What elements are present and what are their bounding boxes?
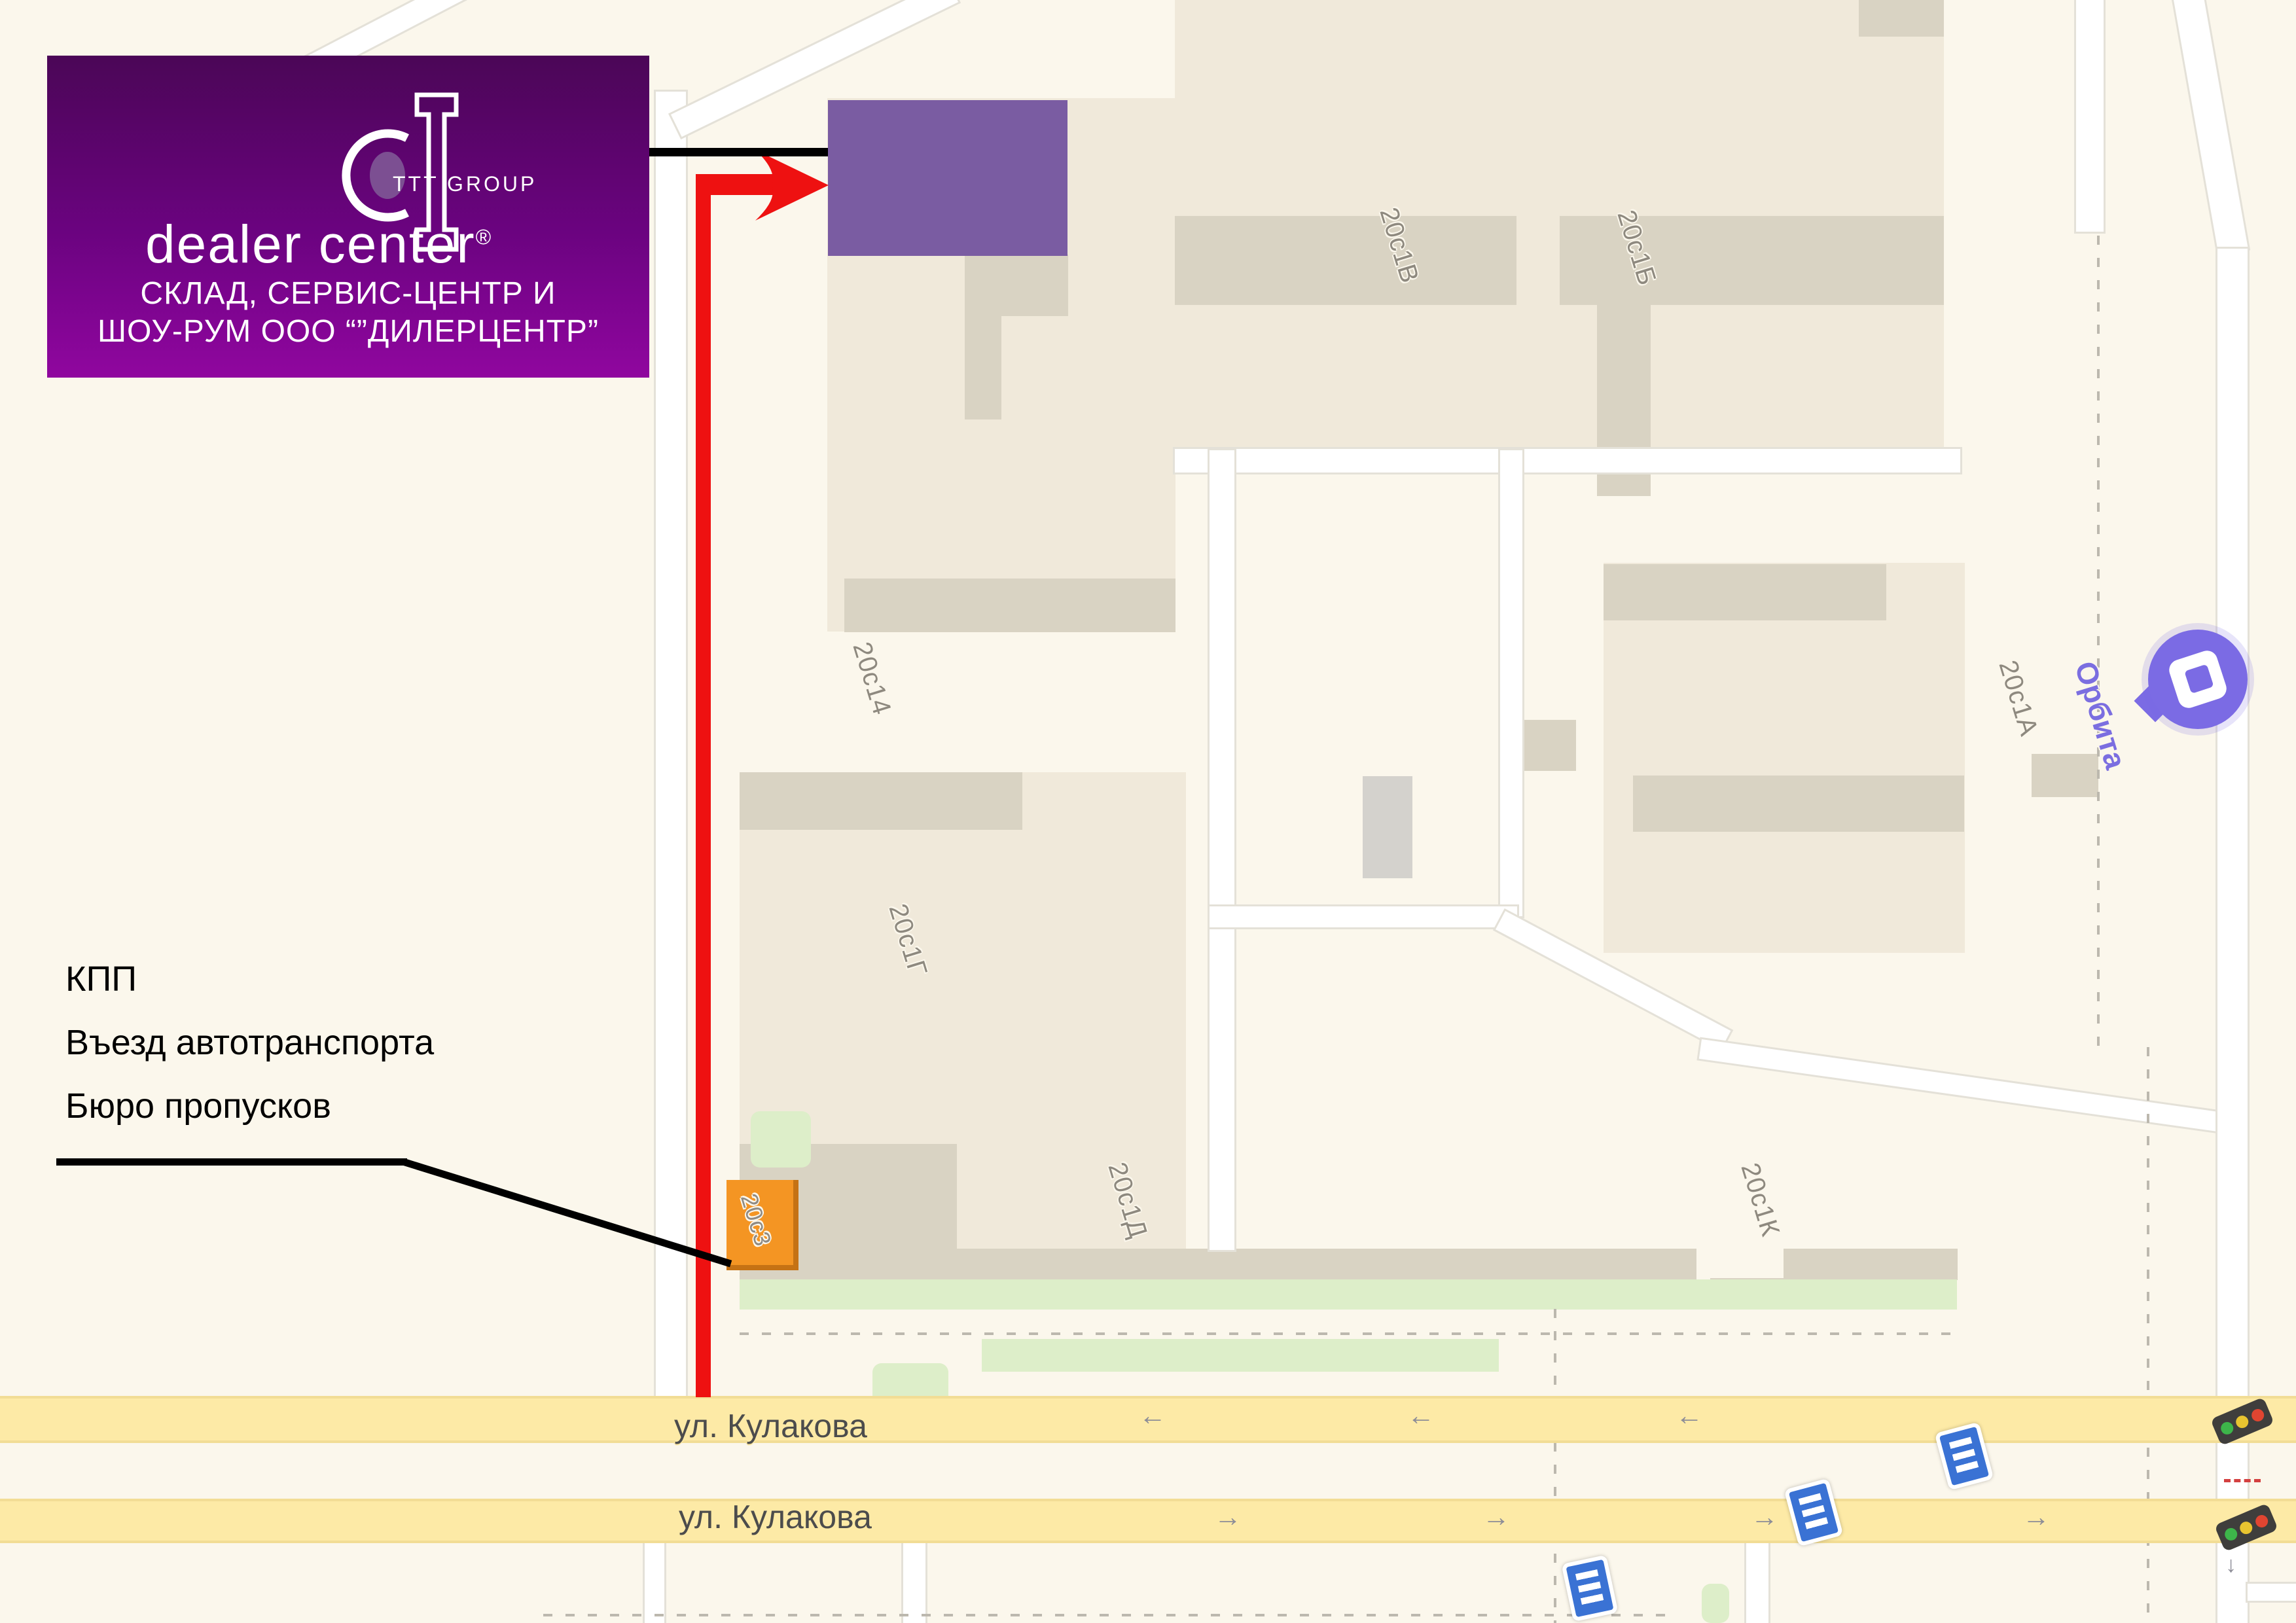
fence-line <box>543 1614 1676 1616</box>
courtyard-road <box>1210 906 1517 927</box>
green-strip <box>740 1279 1957 1310</box>
red-light <box>2253 1513 2270 1529</box>
route-arrowhead-icon <box>750 147 830 223</box>
transport-stop-sign-icon <box>1561 1555 1618 1622</box>
green-area <box>1702 1584 1729 1623</box>
fence-line <box>2097 236 2100 1047</box>
east-road-stub <box>2076 0 2104 232</box>
building-label-20s14: 20с14 <box>846 639 896 719</box>
building-block-right <box>1604 563 1965 953</box>
side-street <box>645 1538 664 1623</box>
fence-line <box>1554 1309 1556 1623</box>
kpp-line-1: КПП <box>65 948 434 1011</box>
building-wing <box>844 579 1175 632</box>
transport-sign-glyph <box>1799 1493 1829 1531</box>
transport-sign-glyph <box>1949 1436 1979 1475</box>
green-area <box>751 1111 811 1168</box>
building-small-east <box>2032 754 2098 797</box>
courtyard-road <box>1500 450 1522 916</box>
kpp-callout-line <box>56 1158 407 1166</box>
logo-tagline-line1: СКЛАД, СЕРВИС-ЦЕНТР И <box>47 276 649 312</box>
fence-line <box>740 1332 1957 1335</box>
side-street <box>2248 1584 2296 1601</box>
building-wing <box>965 255 1001 419</box>
street-label-kulakova-1: ул. Кулакова <box>674 1407 867 1445</box>
side-street <box>1746 1539 1768 1623</box>
transport-sign-glyph <box>1575 1569 1604 1607</box>
access-road <box>656 92 686 1397</box>
street-label-kulakova-2: ул. Кулакова <box>679 1498 872 1536</box>
destination-building-highlight <box>828 100 1067 256</box>
logo-brand-name: dealer center® <box>145 214 603 276</box>
road-direction-arrow-icon: → <box>1482 1501 1510 1533</box>
courtyard-road <box>1210 450 1234 1250</box>
registered-mark: ® <box>476 225 493 249</box>
building-wing <box>1521 720 1576 771</box>
side-street <box>903 1538 925 1623</box>
road-direction-arrow-icon: → <box>2022 1501 2050 1533</box>
building-20s1k-footprint <box>1784 1249 1958 1280</box>
dealer-center-logo-panel: TTT GROUP dealer center® СКЛАД, СЕРВИС-Ц… <box>47 56 649 378</box>
green-light <box>2223 1525 2239 1542</box>
building-20s1v-footprint <box>1175 216 1516 305</box>
road-direction-arrow-icon: ← <box>1676 1400 1703 1431</box>
yellow-light <box>2234 1414 2251 1430</box>
road-direction-arrow-icon: → <box>1214 1501 1242 1533</box>
building-wing <box>1604 564 1886 620</box>
road-direction-arrow-icon: ← <box>1139 1400 1166 1431</box>
route-line-vertical <box>696 174 711 1397</box>
building-label-20s1a: 20с1А <box>1992 657 2043 740</box>
green-light <box>2219 1419 2235 1436</box>
green-strip <box>982 1339 1499 1372</box>
rail-crossing-marks <box>2224 1479 2261 1482</box>
building-20s1g-footprint <box>740 772 1022 830</box>
courtyard-road <box>1699 1039 2220 1132</box>
orbita-map-pin-icon <box>2148 630 2248 729</box>
kpp-line-3: Бюро пропусков <box>65 1075 434 1138</box>
red-light <box>2250 1407 2266 1423</box>
building-20s1d-footprint <box>740 1249 1696 1280</box>
east-road <box>2173 0 2248 254</box>
road-direction-arrow-icon: ← <box>1407 1400 1435 1431</box>
kulakova-street-south <box>0 1499 2296 1543</box>
map-scheme: ул. Кулакова ул. Кулакова ← ← ← → → → → … <box>0 0 2296 1623</box>
building-20s1a-footprint <box>1633 776 1964 832</box>
building-label-20s1k: 20с1К <box>1734 1160 1785 1240</box>
kpp-line-2: Въезд автотранспорта <box>65 1011 434 1075</box>
courtyard-road <box>1175 449 1960 473</box>
logo-to-destination-line <box>649 148 828 156</box>
parking-structure <box>1363 776 1412 878</box>
kpp-annotation: КПП Въезд автотранспорта Бюро пропусков <box>65 948 434 1138</box>
logo-group-name: TTT GROUP <box>393 172 537 196</box>
building-wing <box>1859 0 1944 37</box>
logo-tagline-line2: ШОУ-РУМ ООО “”ДИЛЕРЦЕНТР” <box>47 313 649 349</box>
road-direction-arrow-icon: ↓ <box>2225 1552 2236 1578</box>
road-direction-arrow-icon: → <box>1751 1501 1778 1533</box>
yellow-light <box>2238 1520 2255 1536</box>
